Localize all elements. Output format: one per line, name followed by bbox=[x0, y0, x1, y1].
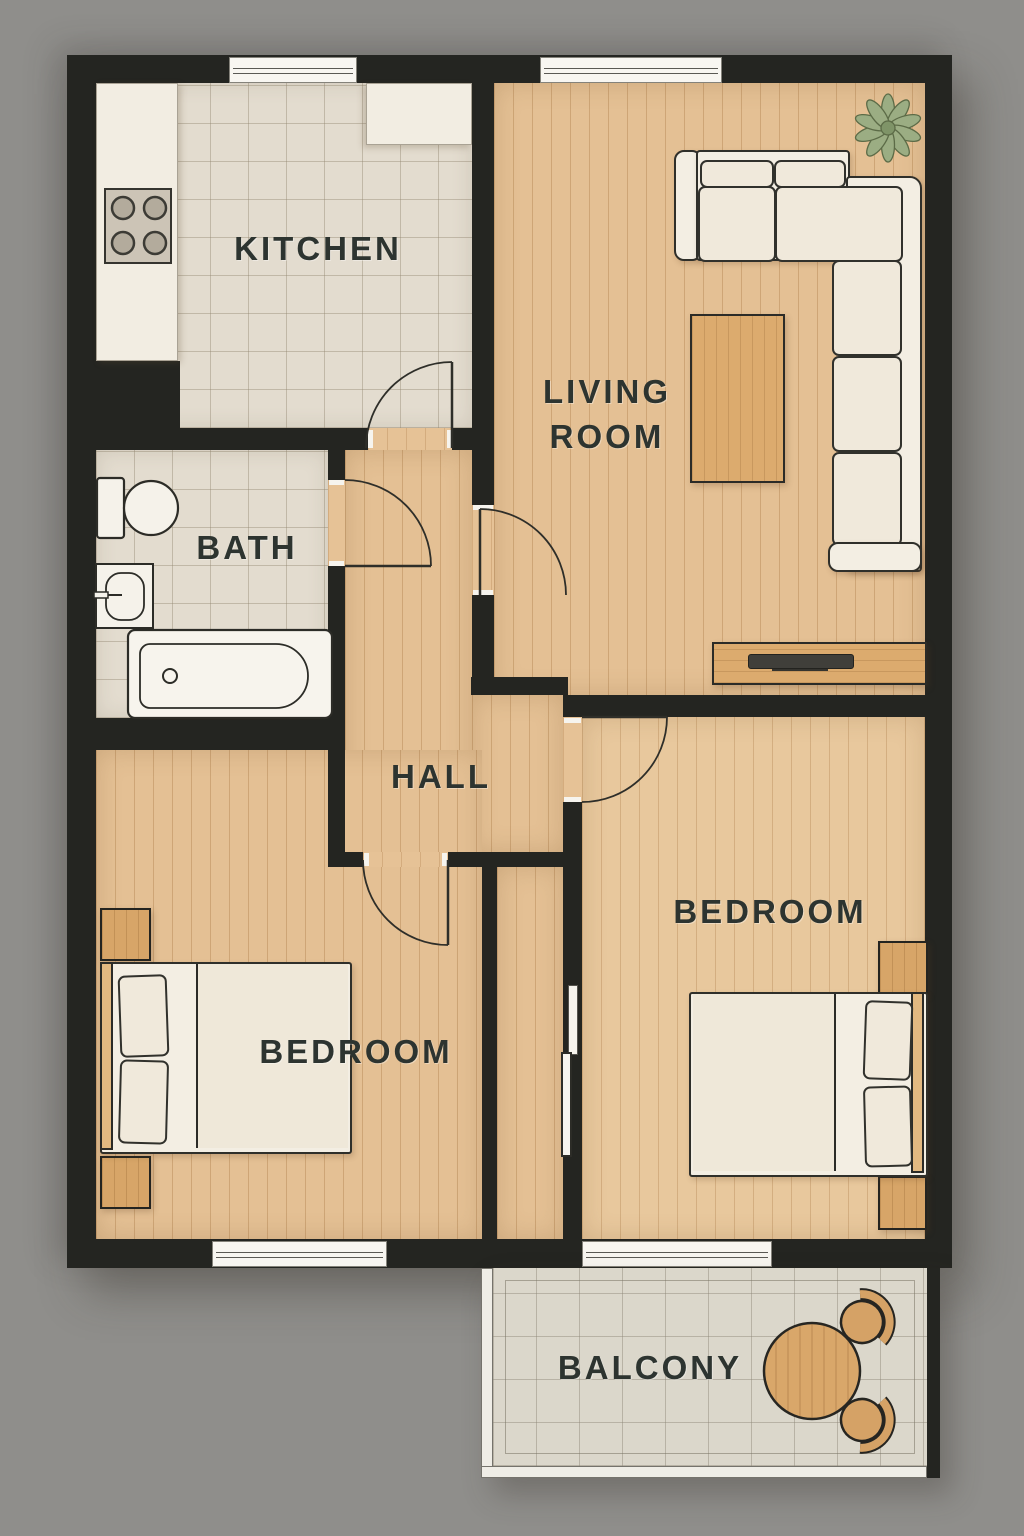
stove bbox=[104, 188, 172, 264]
living-room-label-line2: ROOM bbox=[550, 418, 665, 455]
living-room-doorway bbox=[472, 505, 494, 595]
balcony-railing-left bbox=[481, 1268, 493, 1478]
bedroom-right-label: BEDROOM bbox=[673, 893, 866, 931]
balcony-railing-bottom bbox=[481, 1466, 927, 1478]
bedroom-left-window bbox=[212, 1241, 387, 1267]
bedroom-left-door-jamb bbox=[442, 853, 447, 866]
sofa-seat-cushion bbox=[832, 260, 902, 356]
bedroom-right-door-jamb bbox=[564, 797, 581, 802]
wall-living-room-southwest bbox=[471, 677, 568, 695]
sofa-seat-cushion bbox=[775, 186, 903, 262]
kitchen-window bbox=[229, 57, 357, 83]
hall-label: HALL bbox=[391, 758, 491, 796]
bed-right-blanket bbox=[693, 994, 836, 1171]
living-room-label: LIVING ROOM bbox=[543, 369, 671, 459]
kitchen-doorway bbox=[368, 428, 452, 450]
kitchen-door-jamb bbox=[447, 430, 452, 448]
sofa-seat-cushion bbox=[832, 356, 902, 452]
pillow bbox=[118, 974, 170, 1058]
wall-bedroom-left-door-west bbox=[345, 852, 363, 867]
living-door-jamb bbox=[473, 590, 493, 595]
bath-doorway bbox=[328, 480, 345, 566]
bedroom-left-label: BEDROOM bbox=[259, 1033, 452, 1071]
balcony-label: BALCONY bbox=[558, 1349, 742, 1387]
nightstand bbox=[878, 1176, 927, 1230]
sofa-armrest-bottom bbox=[828, 542, 922, 572]
balcony-wall-right bbox=[927, 1268, 940, 1478]
bedroom-right-doorway bbox=[563, 717, 582, 802]
sofa-back-cushion bbox=[774, 160, 846, 188]
balcony-door-window bbox=[582, 1241, 772, 1267]
wall-below-kitchen-counter bbox=[96, 361, 180, 428]
living-door-jamb bbox=[473, 505, 493, 510]
bed-right-headboard bbox=[911, 992, 924, 1173]
pillow bbox=[863, 1085, 913, 1167]
nightstand bbox=[878, 941, 928, 994]
bedroom-left-door-jamb bbox=[364, 853, 369, 866]
wall-bath-bedroom bbox=[328, 750, 345, 867]
sliding-door-leaf bbox=[561, 1052, 572, 1157]
bath-door-jamb bbox=[329, 561, 344, 566]
bedroom-right-door-jamb bbox=[564, 718, 581, 723]
living-room-window bbox=[540, 57, 722, 83]
nightstand bbox=[100, 908, 151, 961]
sofa-seat-cushion bbox=[698, 186, 776, 262]
sliding-door-slot bbox=[568, 985, 578, 1055]
closet-corridor-floor bbox=[497, 867, 563, 1239]
pillow bbox=[118, 1059, 169, 1144]
tv bbox=[748, 654, 854, 669]
pillow bbox=[863, 1000, 914, 1081]
bath-door-jamb bbox=[329, 480, 344, 485]
bed-left-headboard bbox=[100, 962, 113, 1150]
bath-floor bbox=[96, 450, 328, 718]
bedroom-left-doorway bbox=[363, 852, 448, 867]
kitchen-door-jamb bbox=[368, 430, 373, 448]
nightstand bbox=[100, 1156, 151, 1209]
floor-plan: KITCHEN LIVING ROOM BATH HALL BEDROOM BE… bbox=[0, 0, 1024, 1536]
bath-label: BATH bbox=[196, 529, 297, 567]
wall-bedroom-left-door-east bbox=[448, 852, 482, 867]
living-room-label-line1: LIVING bbox=[543, 373, 671, 410]
kitchen-counter-top-right bbox=[366, 83, 472, 145]
sofa-seat-cushion bbox=[832, 452, 902, 546]
kitchen-label: KITCHEN bbox=[234, 230, 402, 268]
sofa-back-cushion bbox=[700, 160, 774, 188]
coffee-table bbox=[690, 314, 785, 483]
